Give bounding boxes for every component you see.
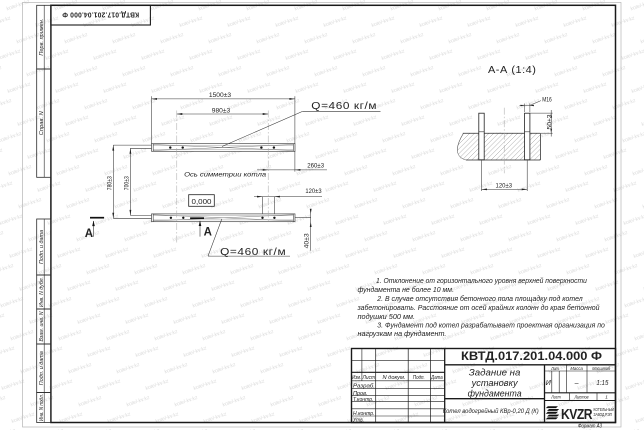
svg-text:Масштаб: Масштаб (592, 366, 610, 371)
svg-text:Лит.: Лит. (550, 366, 559, 371)
svg-text:А: А (85, 228, 93, 240)
svg-text:КВТД.017.201.04.000 Ф: КВТД.017.201.04.000 Ф (461, 349, 602, 363)
svg-text:Утв.: Утв. (353, 418, 364, 424)
svg-text:N докум.: N докум. (383, 375, 406, 381)
svg-text:Дата: Дата (430, 375, 442, 381)
svg-text:120±3: 120±3 (305, 188, 322, 195)
svg-text:установку: установку (471, 378, 519, 388)
svg-text:Котел водогрейный КВр-0,20 Д (: Котел водогрейный КВр-0,20 Д (К) (443, 408, 539, 415)
svg-text:М16: М16 (542, 97, 552, 104)
svg-text:Подп. и дата: Подп. и дата (39, 230, 45, 264)
svg-text:А-А (1:4): А-А (1:4) (488, 64, 536, 76)
svg-text:Перв. примен.: Перв. примен. (39, 19, 45, 56)
svg-text:Т.контр.: Т.контр. (353, 397, 374, 403)
svg-text:Справ. N: Справ. N (39, 111, 45, 135)
svg-text:Инв. N подл.: Инв. N подл. (39, 394, 45, 421)
svg-text:120±3: 120±3 (496, 183, 513, 190)
svg-text:980±3: 980±3 (212, 107, 231, 114)
svg-text:КОТЕЛЬНЫЙ: КОТЕЛЬНЫЙ (594, 407, 615, 412)
svg-text:Листов: Листов (574, 395, 589, 400)
svg-text:нагрузкам на фундамент.: нагрузкам на фундамент. (358, 330, 447, 338)
svg-text:–: – (574, 380, 579, 387)
svg-text:40±3: 40±3 (304, 233, 311, 248)
svg-text:Q=460 кг/м: Q=460 кг/м (220, 247, 286, 258)
svg-text:фундамента не более 10 мм.: фундамента не более 10 мм. (358, 286, 455, 294)
svg-text:Ось симметрии котла: Ось симметрии котла (184, 171, 266, 178)
svg-text:Изм.: Изм. (352, 375, 361, 381)
svg-text:Задание на: Задание на (469, 368, 521, 378)
svg-text:А: А (204, 227, 212, 239)
svg-text:Взам. инв. N: Взам. инв. N (39, 311, 45, 341)
svg-text:Лист: Лист (362, 375, 376, 381)
svg-text:Пров.: Пров. (353, 391, 368, 397)
svg-text:50±3: 50±3 (546, 114, 553, 129)
svg-text:1: 1 (605, 395, 608, 400)
svg-text:Инв. N дубл.: Инв. N дубл. (39, 277, 45, 307)
svg-text:Подп. и дата: Подп. и дата (39, 351, 45, 385)
svg-text:260±3: 260±3 (307, 163, 324, 170)
svg-text:0,000: 0,000 (192, 197, 212, 206)
svg-text:КВТД.017.201.04.000 Ф: КВТД.017.201.04.000 Ф (62, 10, 139, 19)
svg-text:Разраб.: Разраб. (353, 383, 375, 389)
svg-text:Масса: Масса (570, 366, 583, 371)
svg-text:780±3: 780±3 (106, 176, 113, 190)
svg-text:Лист: Лист (550, 395, 560, 400)
svg-text:ЗАВОД.РЭП: ЗАВОД.РЭП (594, 412, 613, 417)
svg-text:1. Отклонение от горизонтально: 1. Отклонение от горизонтального уровня … (376, 277, 587, 285)
svg-text:KVZR: KVZR (561, 407, 593, 423)
svg-text:Подп.: Подп. (413, 375, 425, 381)
svg-text:фундамента: фундамента (468, 389, 522, 399)
svg-text:забетонировать. Расстояние от: забетонировать. Расстояние от осей крайн… (357, 304, 600, 312)
svg-text:2. В случае отсутствия бетонно: 2. В случае отсутствия бетонного пола пл… (376, 295, 582, 303)
svg-text:700±3: 700±3 (123, 176, 130, 190)
svg-text:Н.контр.: Н.контр. (353, 411, 375, 417)
svg-text:1:15: 1:15 (596, 380, 608, 387)
svg-text:3. Фундамент под котел разраба: 3. Фундамент под котел разрабатывает про… (377, 321, 605, 329)
svg-text:Q=460 кг/м: Q=460 кг/м (311, 101, 377, 112)
svg-text:1500±3: 1500±3 (209, 92, 232, 99)
svg-text:подушки 500 мм.: подушки 500 мм. (358, 313, 416, 321)
svg-text:Формат А3: Формат А3 (578, 423, 602, 429)
